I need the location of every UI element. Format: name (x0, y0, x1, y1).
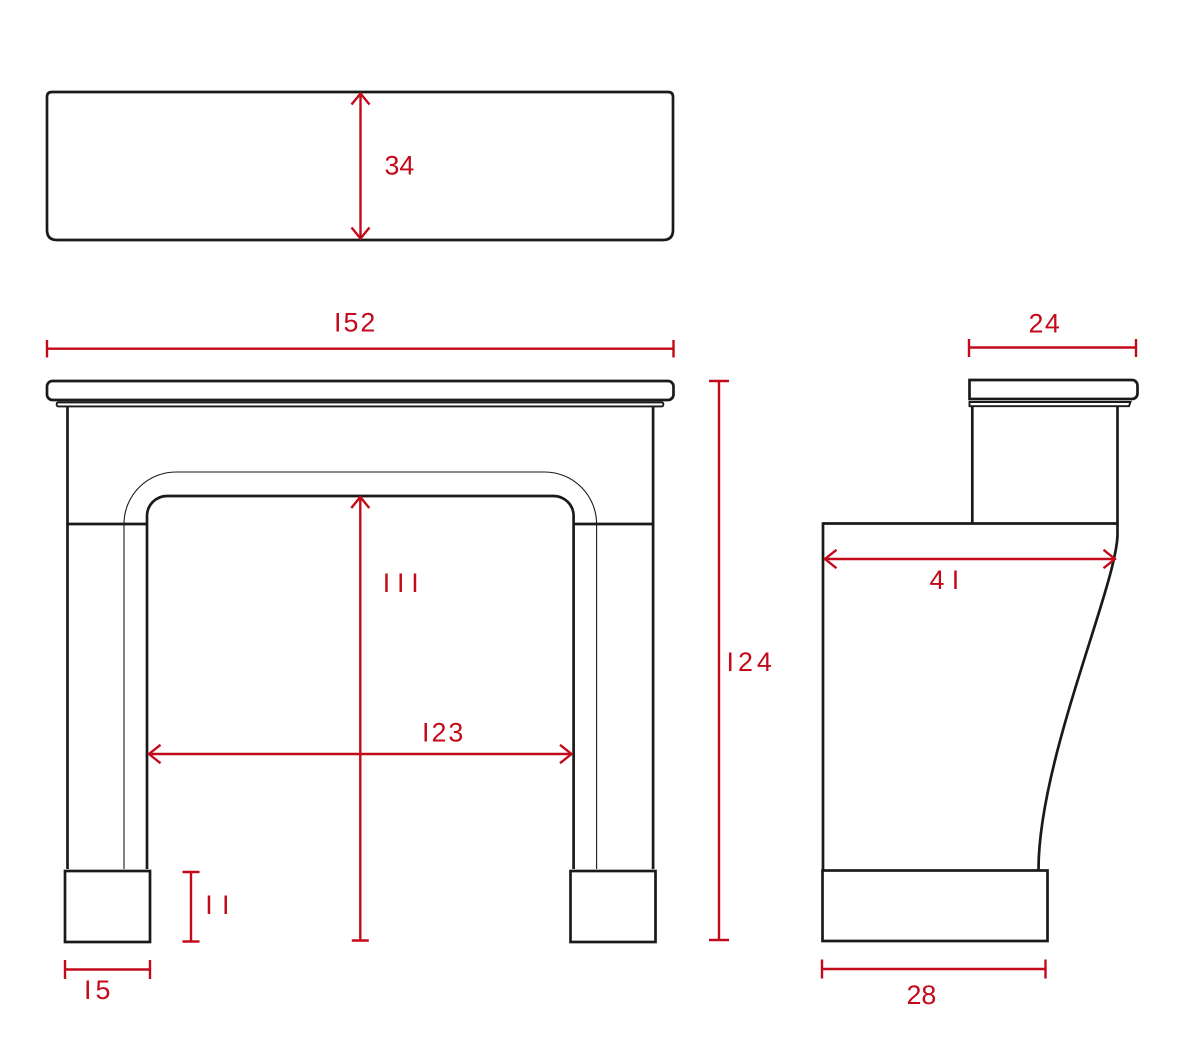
svg-text:I: I (383, 568, 390, 598)
svg-text:28: 28 (907, 980, 937, 1010)
svg-text:I: I (952, 565, 959, 595)
svg-text:I23: I23 (422, 718, 465, 748)
svg-text:24: 24 (1029, 309, 1062, 339)
svg-text:I: I (222, 890, 229, 920)
svg-text:I: I (397, 568, 404, 598)
svg-text:I24: I24 (727, 647, 776, 677)
svg-text:I: I (205, 890, 212, 920)
svg-text:4: 4 (930, 565, 945, 595)
svg-text:I52: I52 (334, 308, 377, 338)
svg-text:I5: I5 (84, 975, 114, 1005)
svg-text:I: I (411, 568, 418, 598)
svg-text:34: 34 (385, 151, 415, 181)
